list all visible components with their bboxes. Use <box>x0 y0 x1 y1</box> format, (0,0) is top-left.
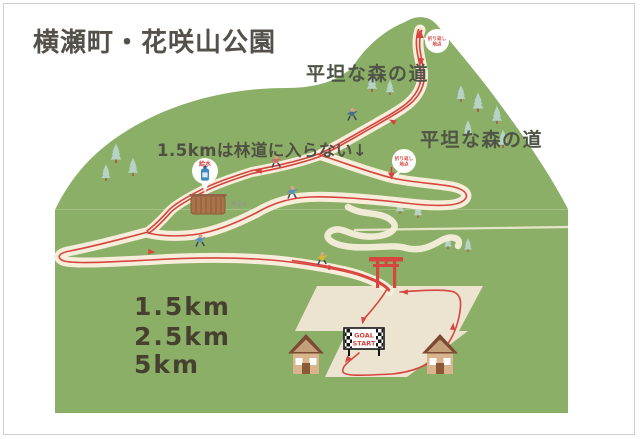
turnaround-mid-label-1: 折り返し <box>395 155 414 162</box>
course-note-label: 1.5kmは林道に入らない↓ <box>157 140 367 160</box>
goal-label: GOAL <box>354 332 374 340</box>
distance-label-1-5km: 1.5km <box>134 292 231 321</box>
turnaround-top-label-2: 地点 <box>432 41 442 48</box>
distance-label-5km: 5km <box>134 350 200 379</box>
turnaround-top-label-1: 折り返し <box>428 35 447 42</box>
park-course-map: GOAL START 展望台 給水 折り返し 地点 折り返し <box>0 0 640 439</box>
observatory-label: 展望台 <box>231 200 247 208</box>
page-title: 横瀬町・花咲山公園 <box>33 27 276 58</box>
flat-forest-road-label-right: 平坦な森の道 <box>420 128 543 151</box>
screenshot-root: { "title": "横瀬町・花咲山公園", "distances": { "… <box>0 0 640 439</box>
turnaround-mid-label-2: 地点 <box>399 161 409 168</box>
flat-forest-road-label-top: 平坦な森の道 <box>306 62 429 85</box>
start-label: START <box>353 340 376 348</box>
distance-label-2-5km: 2.5km <box>134 322 231 351</box>
observation-deck-icon <box>190 194 227 214</box>
